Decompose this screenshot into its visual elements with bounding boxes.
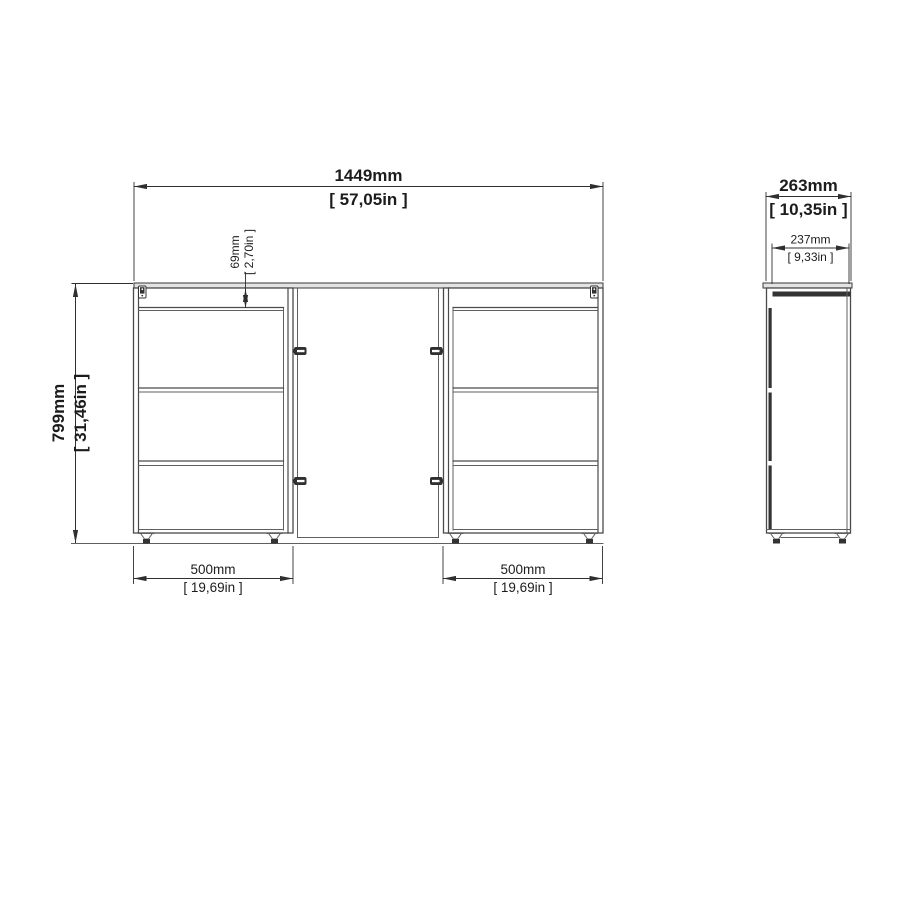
dim-label-mm: 799mm: [49, 384, 68, 443]
dim-overall-width: 1449mm [ 57,05in ]: [134, 166, 603, 281]
connector-bracket-icon: [430, 477, 444, 485]
cabinet-outline: [767, 288, 851, 533]
dim-label-in: [ 31,46in ]: [71, 374, 90, 452]
pedestal-outline: [444, 288, 604, 533]
foot-glide-icon: [582, 534, 597, 544]
side-view: 263mm [ 10,35in ] 237mm [ 9,33in ]: [763, 176, 852, 544]
dim-label-mm: 1449mm: [334, 166, 402, 185]
connector-bracket-icon: [293, 477, 307, 485]
dim-label-in: [ 57,05in ]: [329, 190, 407, 209]
dim-label-in: [ 9,33in ]: [787, 250, 833, 264]
dim-label-mm: 237mm: [790, 233, 830, 247]
top-rail-side: [773, 292, 851, 297]
dim-label-mm: 69mm: [228, 235, 242, 268]
foot-glide-icon: [139, 534, 154, 544]
drawer-front-edge: [769, 308, 772, 530]
dim-label-mm: 263mm: [779, 176, 838, 195]
foot-glide-icon: [769, 534, 784, 544]
foot-glide-icon: [267, 534, 282, 544]
dim-label-in: [ 10,35in ]: [769, 200, 847, 219]
desktop-front: [134, 283, 603, 288]
knee-space: [293, 288, 445, 538]
connector-bracket-icon: [430, 347, 444, 355]
dim-label-in: [ 19,69in ]: [183, 580, 242, 595]
foot-glide-icon: [835, 534, 850, 544]
cam-lock-icon: [139, 286, 147, 298]
desktop-side: [763, 283, 852, 288]
left-pedestal: [134, 286, 294, 544]
dim-left-pedestal-width: 500mm [ 19,69in ]: [134, 546, 294, 595]
technical-drawing: 1449mm [ 57,05in ] 69mm [ 2,70in ] 799mm…: [0, 0, 900, 900]
right-pedestal: [444, 286, 604, 544]
dim-label-mm: 500mm: [190, 562, 235, 577]
dim-label-in: [ 2,70in ]: [242, 229, 256, 275]
front-view: 1449mm [ 57,05in ] 69mm [ 2,70in ] 799mm…: [49, 166, 603, 595]
foot-glide-icon: [448, 534, 463, 544]
dim-overall-height: 799mm [ 31,46in ]: [49, 284, 133, 544]
dim-label-mm: 500mm: [500, 562, 545, 577]
pedestal-outline: [134, 288, 294, 533]
dim-right-pedestal-width: 500mm [ 19,69in ]: [443, 546, 603, 595]
dim-body-depth: 237mm [ 9,33in ]: [772, 233, 849, 285]
connector-bracket-icon: [293, 347, 307, 355]
dim-label-in: [ 19,69in ]: [493, 580, 552, 595]
cam-lock-icon: [591, 286, 599, 298]
dim-overall-depth: 263mm [ 10,35in ]: [766, 176, 851, 281]
